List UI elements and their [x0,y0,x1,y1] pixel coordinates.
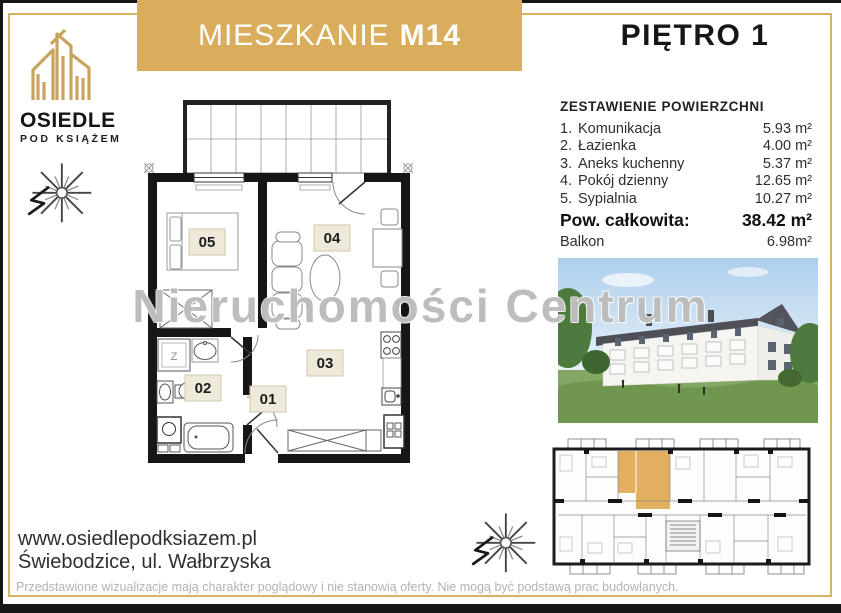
dining-table [373,209,402,287]
closet-label: Z [171,351,178,363]
footer-contact: www.osiedlepodksiazem.pl Świebodzice, ul… [18,528,271,574]
room-label-03: 03 [317,355,334,372]
black-bottom-bar [0,604,841,613]
kitchen-shaft [384,415,404,448]
kitchen-counter [383,358,401,388]
kitchen-worktop [288,430,381,451]
total-area-row: Pow. całkowita: 38.42 m² [560,208,812,232]
balcony [183,100,391,173]
mini-stairwell [666,521,700,551]
table-row: 4. Pokój dzienny 12.65 m² [560,173,812,190]
bathtub [184,423,233,452]
room-label-05: 05 [199,234,216,251]
bathroom-sink [192,339,218,362]
address: Świebodzice, ul. Wałbrzyska [18,551,271,574]
apartment-title-label: MIESZKANIE [198,19,390,53]
table-row: 3. Aneks kuchenny 5.37 m² [560,156,812,173]
gold-frame-bottom [8,595,832,597]
washing-machine [157,417,181,452]
website-url: www.osiedlepodksiazem.pl [18,528,271,551]
kitchen-sink [382,388,401,405]
compass-north-icon [24,158,106,234]
flyer-page: OSIEDLE POD KSIĄŻEM MIESZKANIE M14 PIĘTR… [0,0,841,613]
floor-label: PIĘTRO 1 [575,0,815,71]
room-label-04: 04 [324,230,341,247]
table-row: 5. Sypialnia 10.27 m² [560,191,812,208]
compass-north-icon [468,508,550,584]
table-row: 1. Komunikacja 5.93 m² [560,121,812,138]
disclaimer-text: Przedstawione wizualizacje mają charakte… [16,580,826,594]
kitchen-stove [381,332,401,358]
watermark-text: Nieruchomości Centrum [0,279,841,333]
table-row: 2. Łazienka 4.00 m² [560,138,812,155]
balcony-area-row: Balkon 6.98m² [560,232,812,252]
room-label-01: 01 [260,391,277,408]
floor-overview-plan [548,437,815,580]
buildings-logo-icon [20,16,100,102]
apartment-number: M14 [400,19,461,53]
brand-logo: OSIEDLE POD KSIĄŻEM [20,16,130,145]
brand-subtitle: POD KSIĄŻEM [20,133,130,145]
room-label-02: 02 [195,380,212,397]
wash-basin [157,381,173,403]
brand-name: OSIEDLE [20,109,130,133]
table-title: ZESTAWIENIE POWIERZCHNI [560,99,812,114]
area-summary-table: ZESTAWIENIE POWIERZCHNI 1. Komunikacja 5… [560,99,812,252]
apartment-title-box: MIESZKANIE M14 [137,0,522,71]
